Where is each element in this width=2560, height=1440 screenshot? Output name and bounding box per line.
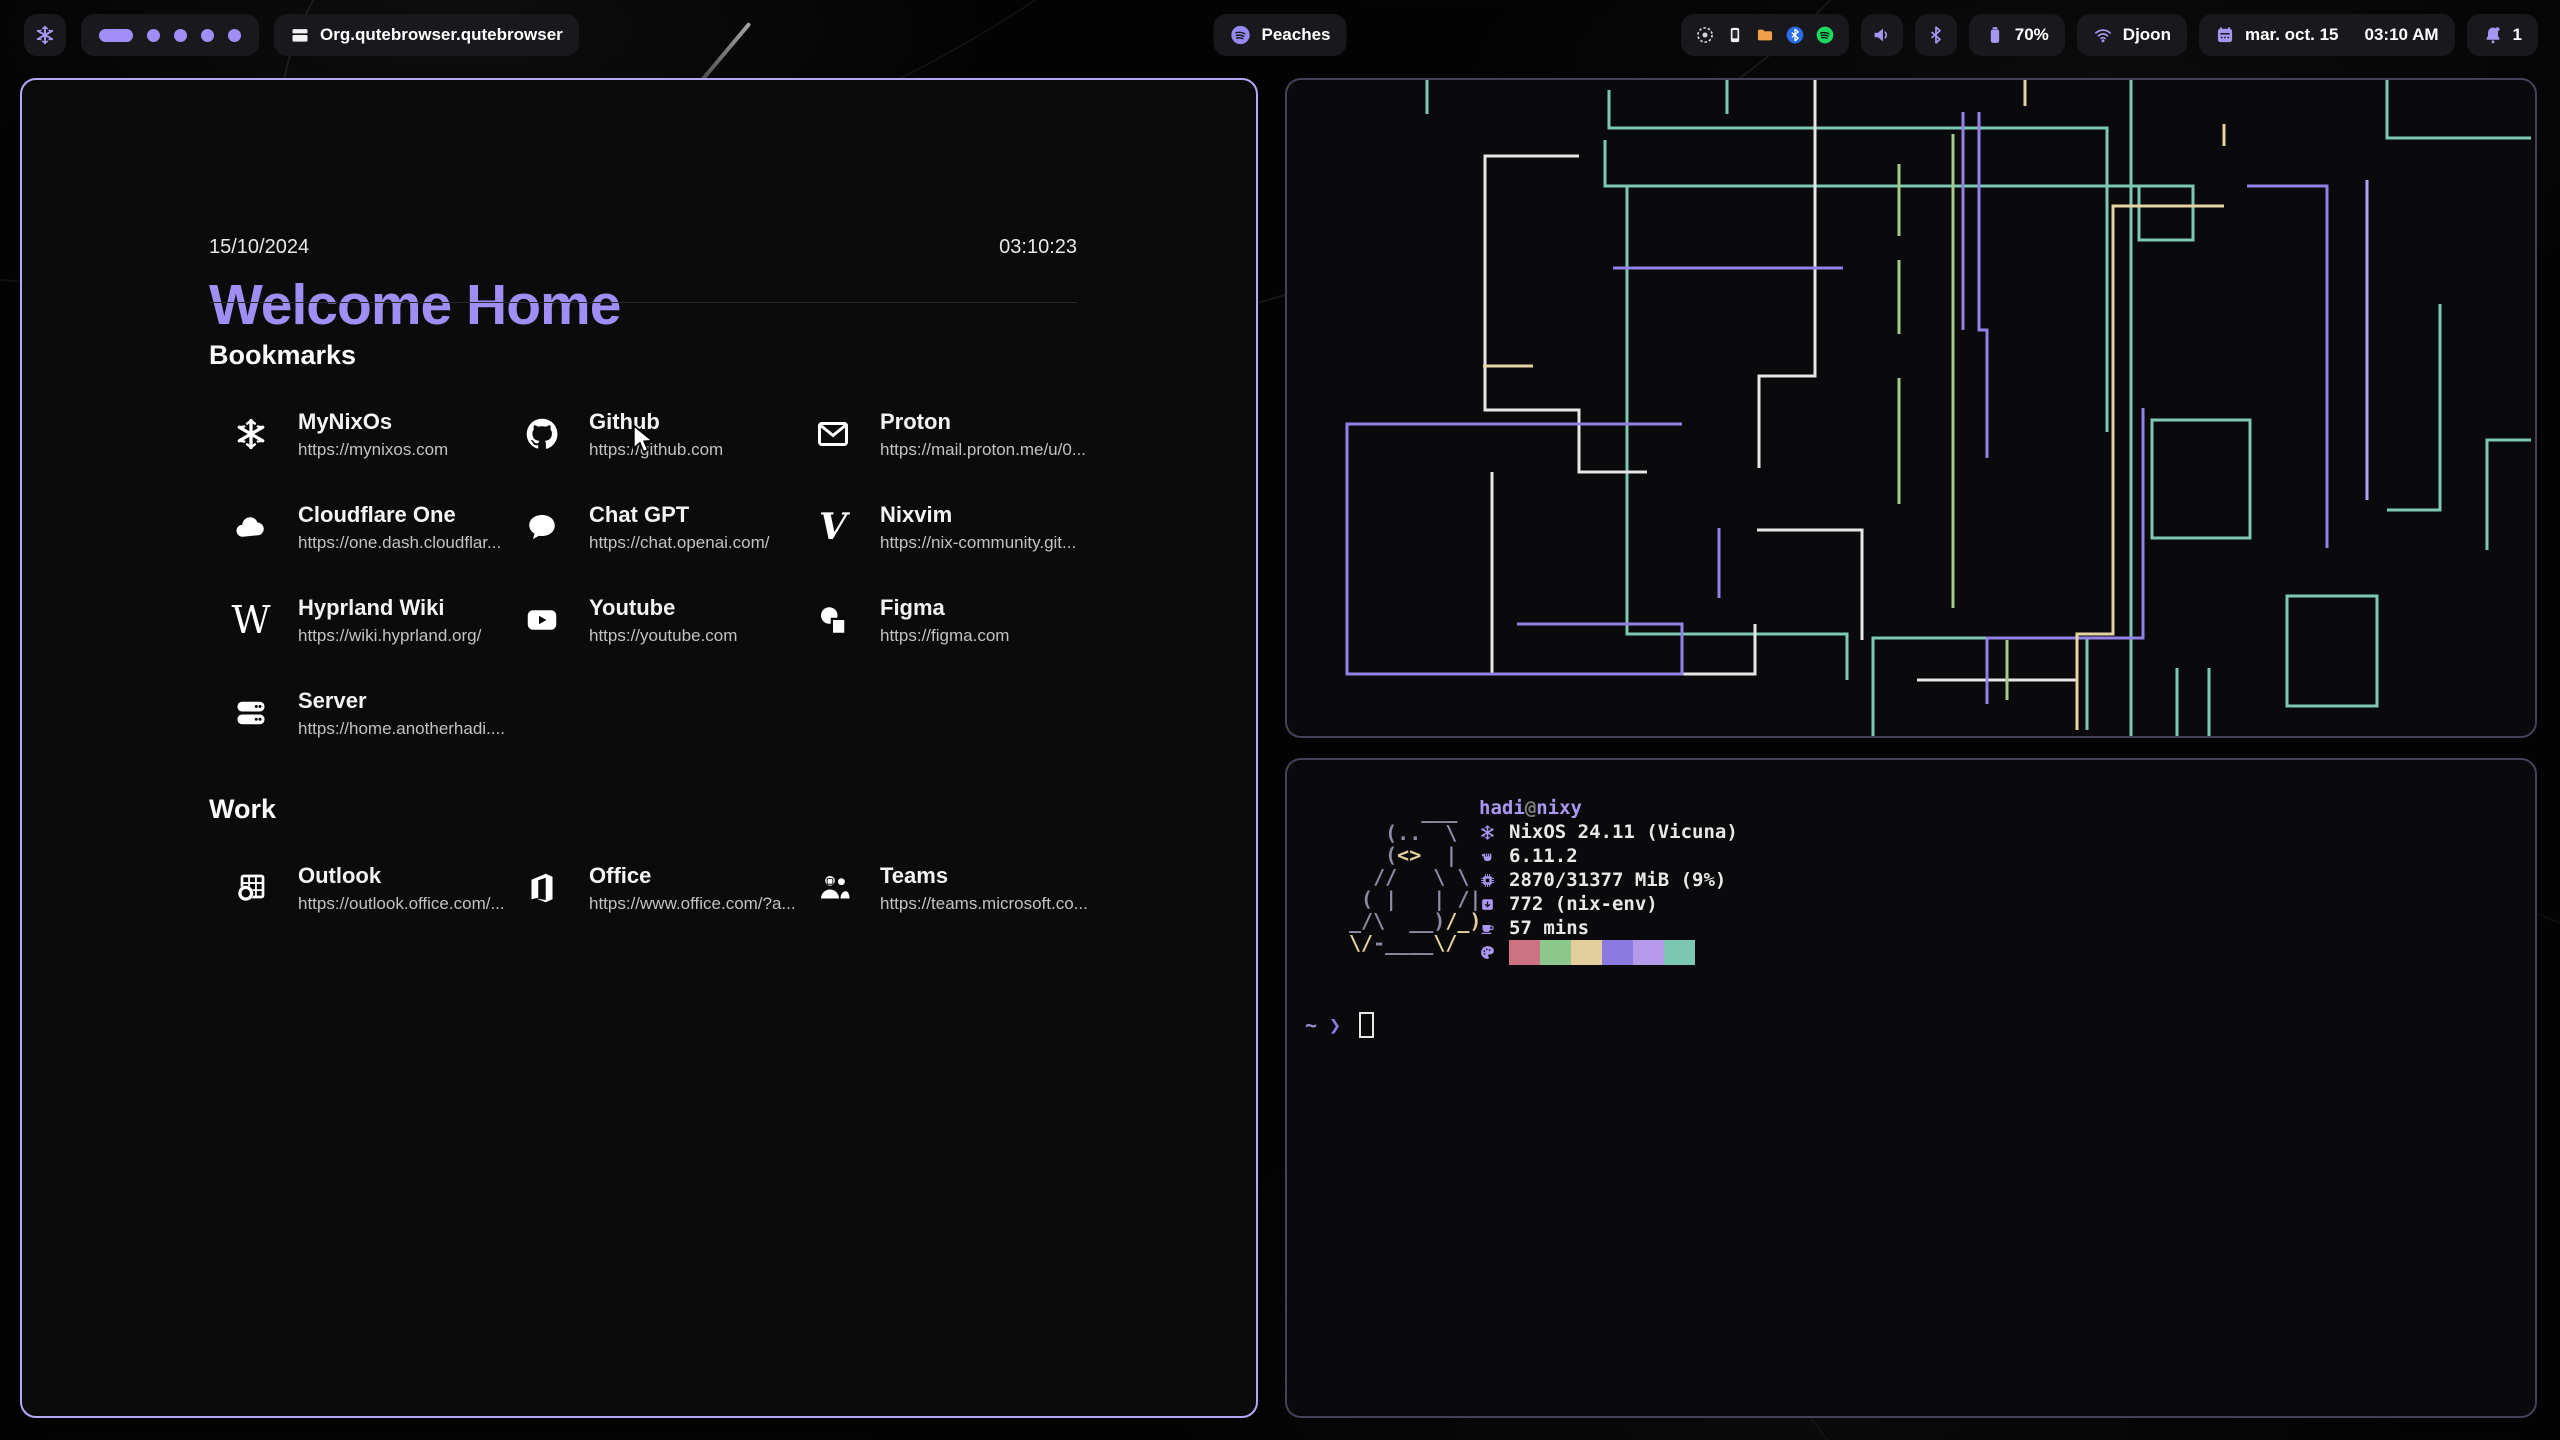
startpage-date: 15/10/2024: [209, 236, 309, 259]
pipe-segment: [1347, 424, 1682, 674]
bookmark-nixvim[interactable]: VNixvimhttps://nix-community.git...: [791, 497, 1082, 557]
pipe-segment: [1759, 80, 1815, 468]
youtube-icon: [522, 600, 562, 640]
prompt-cwd: ~: [1305, 1013, 1317, 1037]
startpage-header: 15/10/2024 03:10:23: [209, 236, 1077, 259]
bookmark-outlook[interactable]: Outlookhttps://outlook.office.com/...: [209, 858, 500, 918]
chip-icon: [1479, 872, 1509, 889]
teams-icon: [813, 868, 853, 908]
work-section: WorkOutlookhttps://outlook.office.com/..…: [209, 794, 1077, 918]
office-icon: [522, 868, 562, 908]
color-swatch: [1633, 940, 1664, 965]
outlook-icon: [231, 868, 271, 908]
battery-icon: [1985, 25, 2005, 45]
bookmark-name: Github: [589, 409, 723, 435]
bookmark-teams[interactable]: Teamshttps://teams.microsoft.co...: [791, 858, 1082, 918]
bookmark-url: https://mynixos.com: [298, 440, 448, 460]
section-heading: Work: [209, 794, 1077, 825]
bookmark-proton[interactable]: Protonhttps://mail.proton.me/u/0...: [791, 404, 1082, 464]
notifications-pill[interactable]: 1: [2467, 14, 2538, 56]
at-separator: @: [1525, 796, 1536, 820]
bookmark-url: https://wiki.hyprland.org/: [298, 626, 481, 646]
media-player-pill[interactable]: Peaches: [1214, 14, 1347, 56]
divider: [209, 302, 1077, 303]
color-swatch: [1664, 940, 1695, 965]
workspace-active[interactable]: [99, 29, 133, 42]
fist-icon: [1479, 848, 1509, 865]
bookmark-name: Proton: [880, 409, 1086, 435]
bluetooth-icon: [1925, 24, 1947, 46]
bookmark-youtube[interactable]: Youtubehttps://youtube.com: [500, 590, 791, 650]
bookmark-chat-gpt[interactable]: Chat GPThttps://chat.openai.com/: [500, 497, 791, 557]
palette-icon: [1479, 944, 1509, 961]
launcher-button[interactable]: [24, 14, 66, 56]
bookmark-name: Youtube: [589, 595, 737, 621]
system-info-block: hadi@nixy NixOS 24.11 (Vicuna)6.11.22870…: [1479, 796, 1738, 964]
clock-time: 03:10 AM: [2365, 25, 2439, 45]
bookmark-name: Hyprland Wiki: [298, 595, 481, 621]
bookmark-office[interactable]: Officehttps://www.office.com/?a...: [500, 858, 791, 918]
clock-pill[interactable]: mar. oct. 15 03:10 AM: [2199, 14, 2455, 56]
battery-indicator[interactable]: 70%: [1969, 14, 2065, 56]
speaker-icon: [1871, 24, 1893, 46]
system-info-line: 772 (nix-env): [1479, 892, 1738, 916]
system-info-line: NixOS 24.11 (Vicuna): [1479, 820, 1738, 844]
nix-snowflake-icon: [231, 414, 271, 454]
bookmark-name: Chat GPT: [589, 502, 770, 528]
username: hadi: [1479, 796, 1525, 820]
bluetooth-badge-icon[interactable]: [1785, 25, 1805, 45]
calendar-icon: [2215, 25, 2235, 45]
notification-count: 1: [2513, 25, 2522, 45]
system-info-line: 6.11.2: [1479, 844, 1738, 868]
nix-snowflake-icon: [1479, 824, 1509, 841]
shell-prompt[interactable]: ~ ❯: [1305, 1012, 1374, 1038]
bookmark-url: https://home.anotherhadi....: [298, 719, 505, 739]
bookmark-server[interactable]: Serverhttps://home.anotherhadi....: [209, 683, 500, 743]
workspace-dot[interactable]: [147, 29, 160, 42]
color-swatch: [1540, 940, 1571, 965]
prompt-symbol: ❯: [1329, 1013, 1341, 1037]
bookmark-name: MyNixOs: [298, 409, 448, 435]
bookmark-url: https://nix-community.git...: [880, 533, 1076, 553]
workspace-switcher[interactable]: [81, 14, 259, 56]
spotify-badge-icon[interactable]: [1815, 25, 1835, 45]
info-value: 772 (nix-env): [1509, 892, 1658, 916]
bookmark-hyprland-wiki[interactable]: WHyprland Wikihttps://wiki.hyprland.org/: [209, 590, 500, 650]
pipes-terminal-window[interactable]: [1285, 78, 2537, 738]
github-icon: [522, 414, 562, 454]
bell-icon: [2483, 25, 2503, 45]
info-value: 2870/31377 MiB (9%): [1509, 868, 1726, 892]
status-bar: Org.qutebrowser.qutebrowser Peaches 70% …: [0, 0, 2560, 66]
bookmark-name: Teams: [880, 863, 1088, 889]
page-title: Welcome Home: [209, 272, 620, 338]
bookmarks-section: BookmarksMyNixOshttps://mynixos.comGithu…: [209, 340, 1077, 743]
bookmark-url: https://github.com: [589, 440, 723, 460]
window-title: Org.qutebrowser.qutebrowser: [320, 25, 563, 45]
battery-percent: 70%: [2015, 25, 2049, 45]
color-swatch: [1509, 940, 1540, 965]
spotify-icon: [1230, 24, 1252, 46]
server-icon: [231, 693, 271, 733]
bookmark-url: https://www.office.com/?a...: [589, 894, 796, 914]
wifi-icon: [2093, 25, 2113, 45]
bookmark-name: Figma: [880, 595, 1009, 621]
bookmark-figma[interactable]: Figmahttps://figma.com: [791, 590, 1082, 650]
startpage-clock: 03:10:23: [999, 236, 1077, 259]
nixos-snowflake-icon: [34, 24, 56, 46]
bookmark-mynixos[interactable]: MyNixOshttps://mynixos.com: [209, 404, 500, 464]
fetch-terminal-window[interactable]: ___ (.. \ (<> | // \ \ ( | | /|_/\ __)/_…: [1285, 758, 2537, 1418]
pipe-segment: [1609, 90, 2107, 432]
pipe-segment: [2287, 596, 2377, 706]
system-info-line: 2870/31377 MiB (9%): [1479, 868, 1738, 892]
system-info-line: 57 mins: [1479, 916, 1738, 940]
pipe-segment: [2152, 420, 2250, 538]
phone-device-icon[interactable]: [1725, 25, 1745, 45]
pipe-segment: [2387, 80, 2531, 138]
terminal-color-palette: [1479, 940, 1738, 964]
media-track-label: Peaches: [1262, 25, 1331, 45]
downloads-folder-icon[interactable]: [1755, 25, 1775, 45]
nixvim-v-icon: V: [813, 507, 853, 547]
cloud-icon: [231, 507, 271, 547]
pipe-segment: [2487, 440, 2531, 550]
bookmark-name: Nixvim: [880, 502, 1076, 528]
bookmark-name: Server: [298, 688, 505, 714]
pipe-segment: [1757, 530, 1862, 640]
info-value: 6.11.2: [1509, 844, 1578, 868]
pipe-segment: [1873, 638, 2087, 736]
terminal-cursor: [1359, 1012, 1374, 1038]
pipes-screensaver: [1287, 80, 2535, 736]
pipe-segment: [2247, 186, 2327, 548]
bookmark-name: Outlook: [298, 863, 505, 889]
system-tray[interactable]: [1681, 14, 1849, 56]
bookmark-url: https://mail.proton.me/u/0...: [880, 440, 1086, 460]
pipe-segment: [2387, 304, 2440, 510]
bookmark-url: https://one.dash.cloudflar...: [298, 533, 501, 553]
bookmark-url: https://figma.com: [880, 626, 1009, 646]
info-value: 57 mins: [1509, 916, 1589, 940]
bookmark-url: https://chat.openai.com/: [589, 533, 770, 553]
screen-record-icon[interactable]: [1695, 25, 1715, 45]
pipe-segment: [1979, 112, 1987, 458]
chat-icon: [522, 507, 562, 547]
bluetooth-button[interactable]: [1915, 14, 1957, 56]
clock-date: mar. oct. 15: [2245, 25, 2339, 45]
bookmark-name: Cloudflare One: [298, 502, 501, 528]
pipe-segment: [1492, 472, 1755, 674]
coffee-icon: [1479, 920, 1509, 937]
network-indicator[interactable]: Djoon: [2077, 14, 2187, 56]
figma-icon: [813, 600, 853, 640]
bookmark-cloudflare-one[interactable]: Cloudflare Onehttps://one.dash.cloudflar…: [209, 497, 500, 557]
pipe-segment: [1987, 408, 2143, 704]
bookmark-name: Office: [589, 863, 796, 889]
hostname: nixy: [1536, 796, 1582, 820]
color-swatch: [1602, 940, 1633, 965]
section-heading: Bookmarks: [209, 340, 1077, 371]
info-value: NixOS 24.11 (Vicuna): [1509, 820, 1738, 844]
workspace-dot[interactable]: [228, 29, 241, 42]
wiki-w-icon: W: [231, 600, 271, 640]
mail-icon: [813, 414, 853, 454]
mouse-cursor: [630, 424, 656, 454]
color-swatch: [1571, 940, 1602, 965]
bookmark-url: https://youtube.com: [589, 626, 737, 646]
active-window-title-pill[interactable]: Org.qutebrowser.qutebrowser: [274, 14, 579, 56]
workspace-dot[interactable]: [201, 29, 214, 42]
network-ssid: Djoon: [2123, 25, 2171, 45]
window-icon: [290, 25, 310, 45]
user-host-line: hadi@nixy: [1479, 796, 1738, 820]
workspace-dot[interactable]: [174, 29, 187, 42]
volume-button[interactable]: [1861, 14, 1903, 56]
ascii-art-logo: ___ (.. \ (<> | // \ \ ( | | /|_/\ __)/_…: [1349, 800, 1481, 954]
qutebrowser-window[interactable]: 15/10/2024 03:10:23 Welcome Home Bookmar…: [20, 78, 1258, 1418]
bookmark-url: https://teams.microsoft.co...: [880, 894, 1088, 914]
bookmark-url: https://outlook.office.com/...: [298, 894, 505, 914]
package-icon: [1479, 896, 1509, 913]
